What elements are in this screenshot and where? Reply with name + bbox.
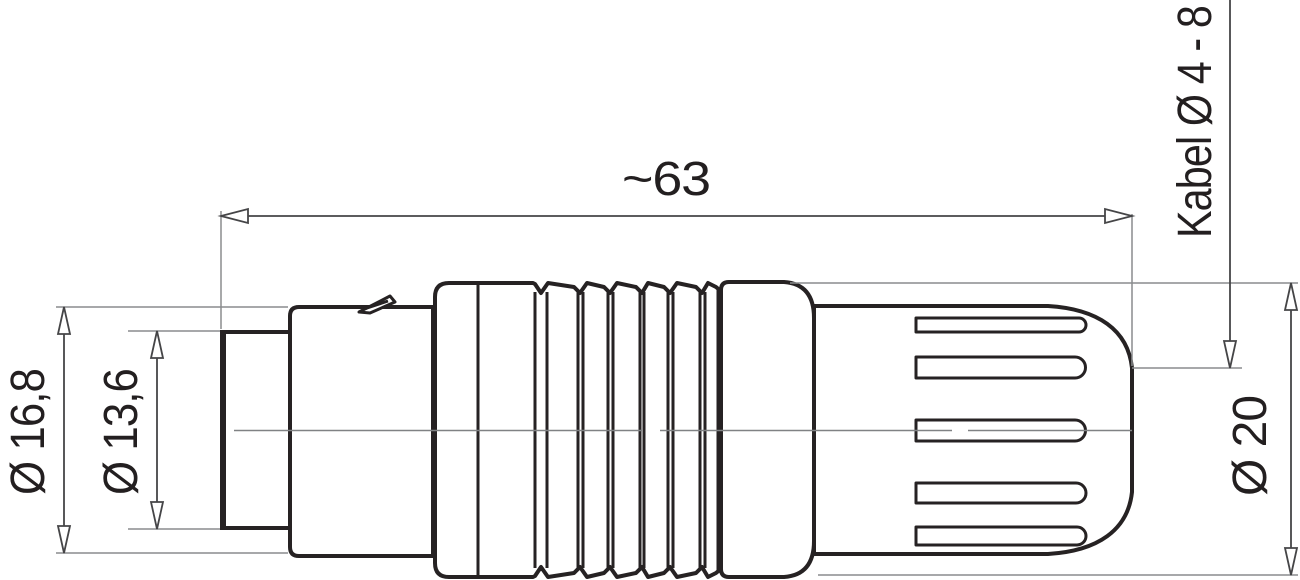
dimension-outer-diameter-label: Ø 16,8 [2,369,55,495]
collar [721,282,814,577]
arrowhead-down [58,526,70,553]
arrowhead-up [151,331,163,358]
dimension-cable-diameter: Kabel Ø 4 - 8 [1132,0,1242,368]
connector-side-view [223,282,1132,577]
grip-slot [916,527,1086,545]
dimension-body-diameter-label: Ø 20 [1224,396,1277,496]
dimension-cable-diameter-label: Kabel Ø 4 - 8 [1169,6,1222,238]
grip-slot [916,357,1086,378]
coupling-ring [290,307,433,556]
dimension-length-label: ~63 [622,153,710,206]
grip-slot [916,483,1086,503]
connector-technical-drawing: ~63 Ø 16,8 Ø 13,6 Ø 20 Kabel Ø 4 - 8 [0,0,1300,580]
arrowhead-up [58,307,70,334]
arrowhead-up [1285,283,1297,310]
dimension-inner-diameter: Ø 13,6 [95,331,220,529]
arrowhead-down [1285,548,1297,575]
dimension-inner-diameter-label: Ø 13,6 [95,369,148,495]
drawing-canvas: ~63 Ø 16,8 Ø 13,6 Ø 20 Kabel Ø 4 - 8 [0,0,1300,580]
arrowhead-down [151,502,163,529]
arrowhead-down [1224,341,1236,368]
arrowhead-left [221,209,248,223]
arrowhead-right [1105,209,1132,223]
grip-slot [916,318,1086,332]
